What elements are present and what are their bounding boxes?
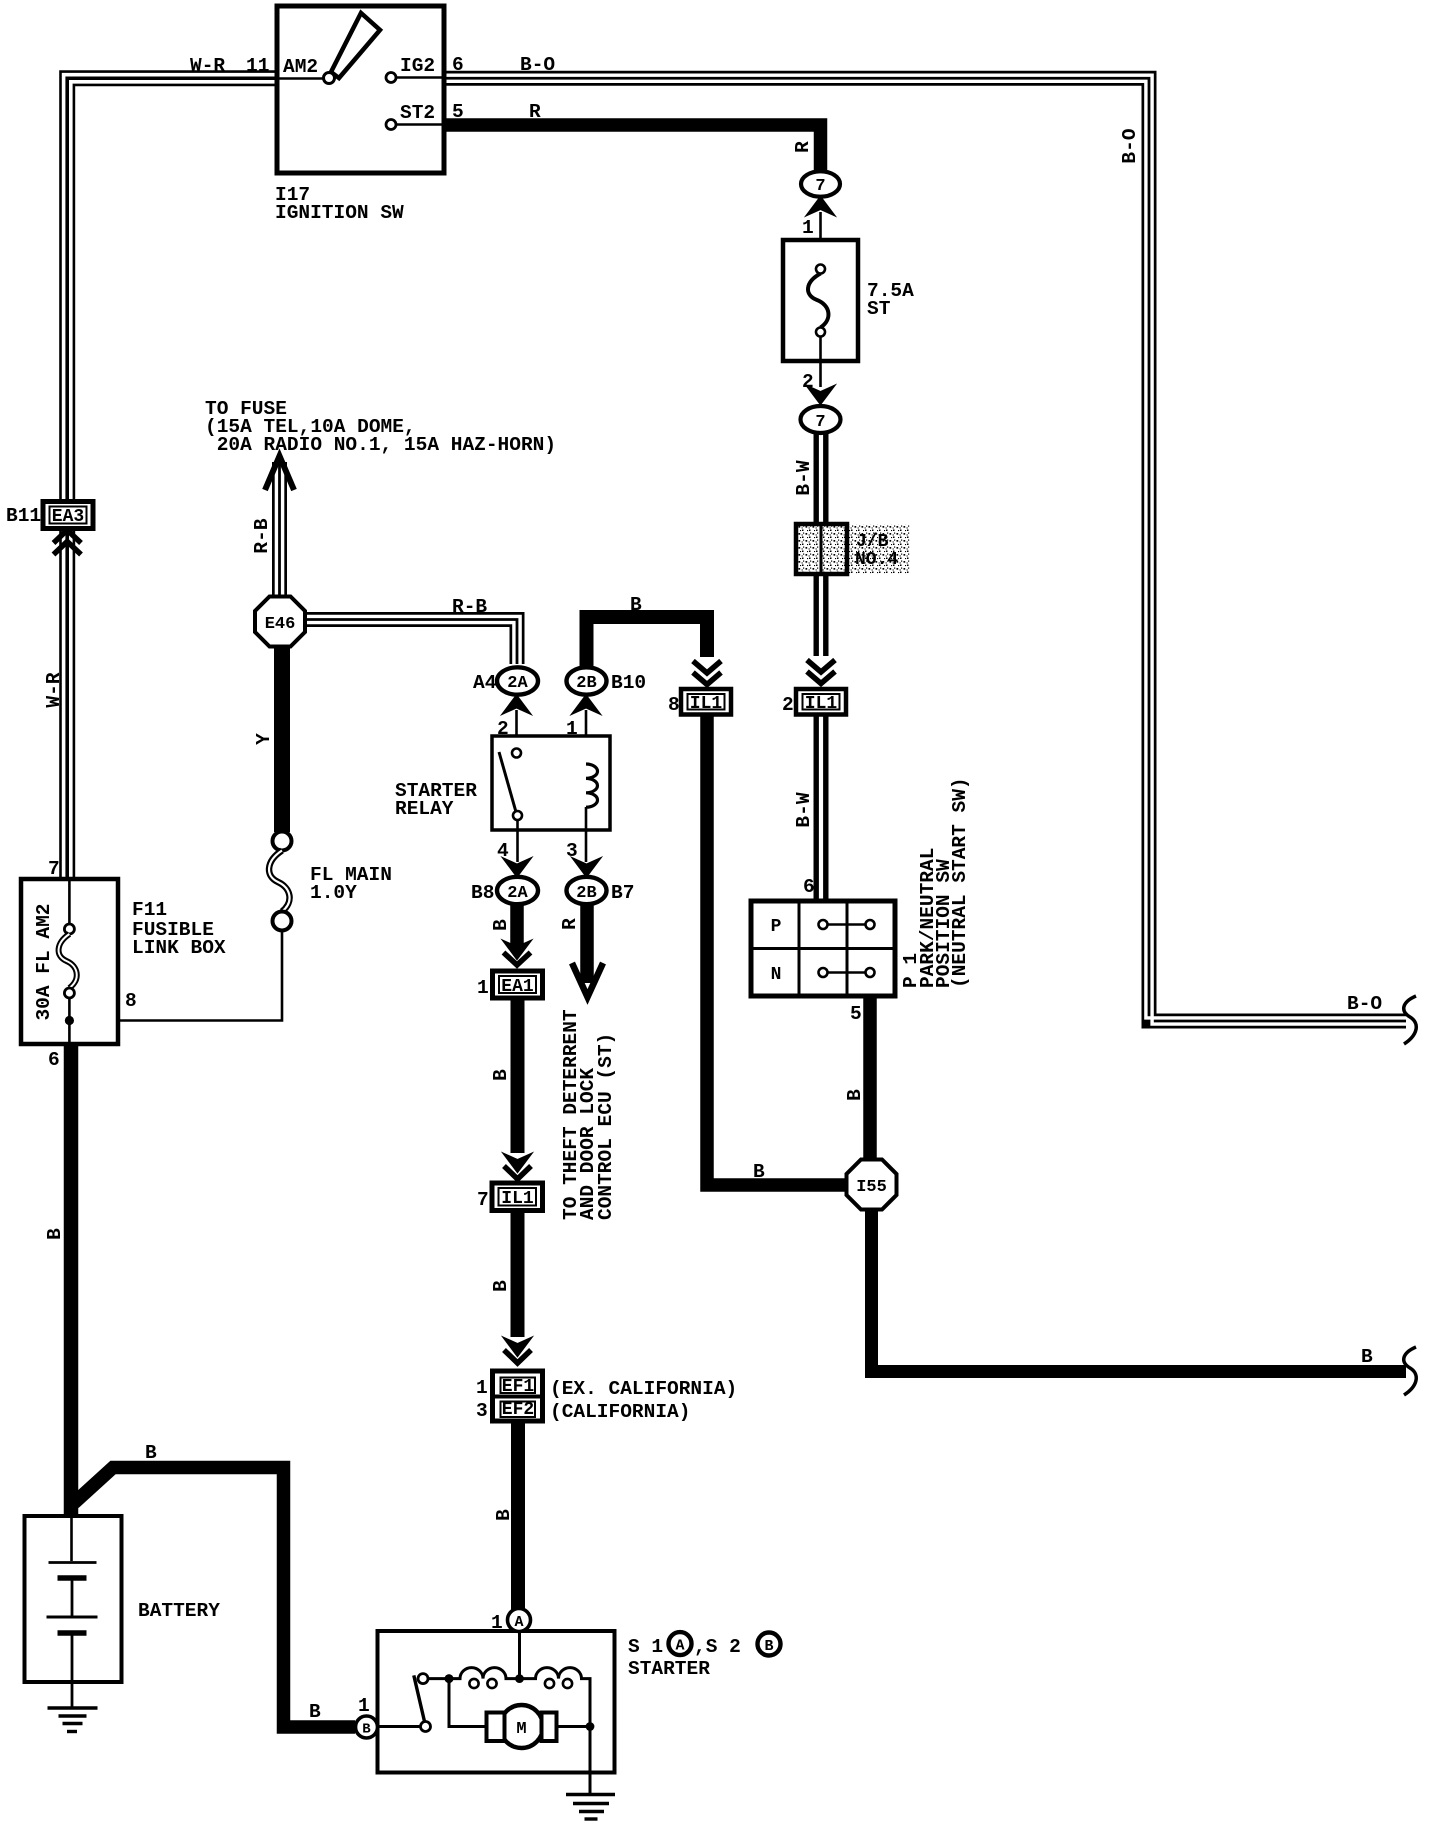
svg-text:B7: B7 (611, 882, 634, 904)
svg-text:B: B (44, 1228, 66, 1240)
svg-text:20A RADIO NO.1, 15A HAZ-HORN): 20A RADIO NO.1, 15A HAZ-HORN) (205, 434, 556, 456)
svg-text:1: 1 (802, 217, 814, 239)
svg-text:IL1: IL1 (805, 694, 838, 714)
svg-text:M: M (516, 1720, 526, 1739)
svg-text:1: 1 (476, 1377, 488, 1399)
svg-text:IGNITION SW: IGNITION SW (275, 202, 404, 224)
svg-text:B: B (362, 1722, 371, 1738)
svg-text:5: 5 (452, 101, 464, 123)
svg-text:6: 6 (48, 1049, 60, 1071)
svg-text:8: 8 (668, 694, 680, 716)
svg-text:I55: I55 (856, 1178, 887, 1197)
svg-text:B: B (490, 1280, 512, 1292)
svg-text:A: A (514, 1614, 523, 1631)
svg-text:(EX. CALIFORNIA): (EX. CALIFORNIA) (550, 1378, 737, 1400)
svg-text:R: R (529, 101, 541, 123)
svg-text:W-R: W-R (190, 55, 225, 77)
svg-text:J/B: J/B (856, 532, 889, 552)
svg-text:1.0Y: 1.0Y (310, 882, 357, 904)
svg-text:CONTROL ECU (ST): CONTROL ECU (ST) (595, 1033, 617, 1220)
svg-text:,S 2: ,S 2 (694, 1636, 741, 1658)
svg-text:LINK BOX: LINK BOX (132, 937, 226, 959)
svg-text:B: B (1361, 1346, 1373, 1368)
svg-text:7: 7 (815, 413, 825, 432)
svg-text:AM2: AM2 (283, 56, 318, 78)
svg-text:A: A (675, 1638, 684, 1655)
svg-text:30A FL AM2: 30A FL AM2 (33, 903, 55, 1020)
svg-text:RELAY: RELAY (395, 798, 454, 820)
svg-text:2B: 2B (576, 884, 596, 903)
svg-text:2A: 2A (507, 884, 528, 903)
svg-text:B-O: B-O (1347, 993, 1382, 1015)
svg-text:6: 6 (452, 54, 464, 76)
svg-text:B11: B11 (6, 505, 41, 527)
svg-text:ST2: ST2 (400, 102, 435, 124)
svg-text:B: B (145, 1442, 157, 1464)
svg-text:IG2: IG2 (400, 55, 435, 77)
svg-text:B: B (753, 1161, 765, 1183)
svg-text:11: 11 (246, 55, 269, 77)
svg-text:P: P (771, 917, 782, 937)
svg-text:1: 1 (358, 1695, 370, 1717)
svg-text:5: 5 (850, 1003, 862, 1025)
svg-text:1: 1 (477, 977, 489, 999)
svg-text:B: B (309, 1701, 321, 1723)
svg-text:F11: F11 (132, 899, 167, 921)
svg-text:2: 2 (782, 694, 794, 716)
svg-text:N: N (771, 965, 782, 985)
svg-text:2: 2 (802, 371, 814, 393)
svg-text:EF1: EF1 (502, 1377, 535, 1397)
svg-text:7: 7 (477, 1189, 489, 1211)
svg-text:B-O: B-O (1119, 128, 1141, 163)
svg-text:B-O: B-O (520, 54, 555, 76)
svg-text:ST: ST (867, 298, 891, 320)
svg-text:W-R: W-R (43, 672, 65, 707)
svg-text:R-B: R-B (251, 518, 273, 553)
svg-text:B-W: B-W (793, 460, 815, 495)
svg-text:3: 3 (566, 840, 578, 862)
svg-text:B-W: B-W (793, 792, 815, 827)
svg-text:3: 3 (476, 1400, 488, 1422)
svg-text:E46: E46 (265, 615, 296, 634)
svg-text:EA1: EA1 (501, 977, 534, 997)
svg-text:B8: B8 (471, 882, 494, 904)
svg-text:(CALIFORNIA): (CALIFORNIA) (550, 1401, 690, 1423)
svg-text:4: 4 (497, 840, 509, 862)
svg-text:B: B (844, 1089, 866, 1101)
svg-text:A4: A4 (473, 672, 497, 694)
svg-text:EA3: EA3 (52, 507, 84, 527)
svg-text:7: 7 (48, 858, 60, 880)
svg-text:Y: Y (253, 733, 275, 745)
svg-text:(NEUTRAL START SW): (NEUTRAL START SW) (949, 777, 971, 988)
svg-text:2A: 2A (507, 674, 528, 693)
svg-text:B10: B10 (611, 672, 646, 694)
svg-text:R: R (559, 918, 581, 930)
svg-text:R-B: R-B (452, 596, 487, 618)
svg-text:EF2: EF2 (502, 1400, 534, 1420)
svg-text:S 1: S 1 (628, 1636, 663, 1658)
svg-text:6: 6 (803, 876, 815, 898)
svg-text:2B: 2B (576, 674, 596, 693)
svg-text:IL1: IL1 (690, 694, 723, 714)
svg-text:NO.4: NO.4 (855, 550, 898, 570)
svg-text:1: 1 (566, 718, 578, 740)
svg-text:B: B (764, 1638, 773, 1655)
svg-text:IL1: IL1 (501, 1189, 534, 1209)
svg-text:B: B (490, 919, 512, 931)
svg-text:B: B (493, 1509, 515, 1521)
svg-text:R: R (792, 141, 814, 153)
svg-text:1: 1 (491, 1612, 503, 1634)
svg-text:STARTER: STARTER (628, 1658, 710, 1680)
svg-text:BATTERY: BATTERY (138, 1600, 220, 1622)
svg-text:8: 8 (125, 990, 137, 1012)
svg-text:2: 2 (497, 718, 509, 740)
svg-text:B: B (490, 1069, 512, 1081)
svg-text:B: B (630, 594, 642, 616)
svg-text:7: 7 (815, 177, 825, 196)
